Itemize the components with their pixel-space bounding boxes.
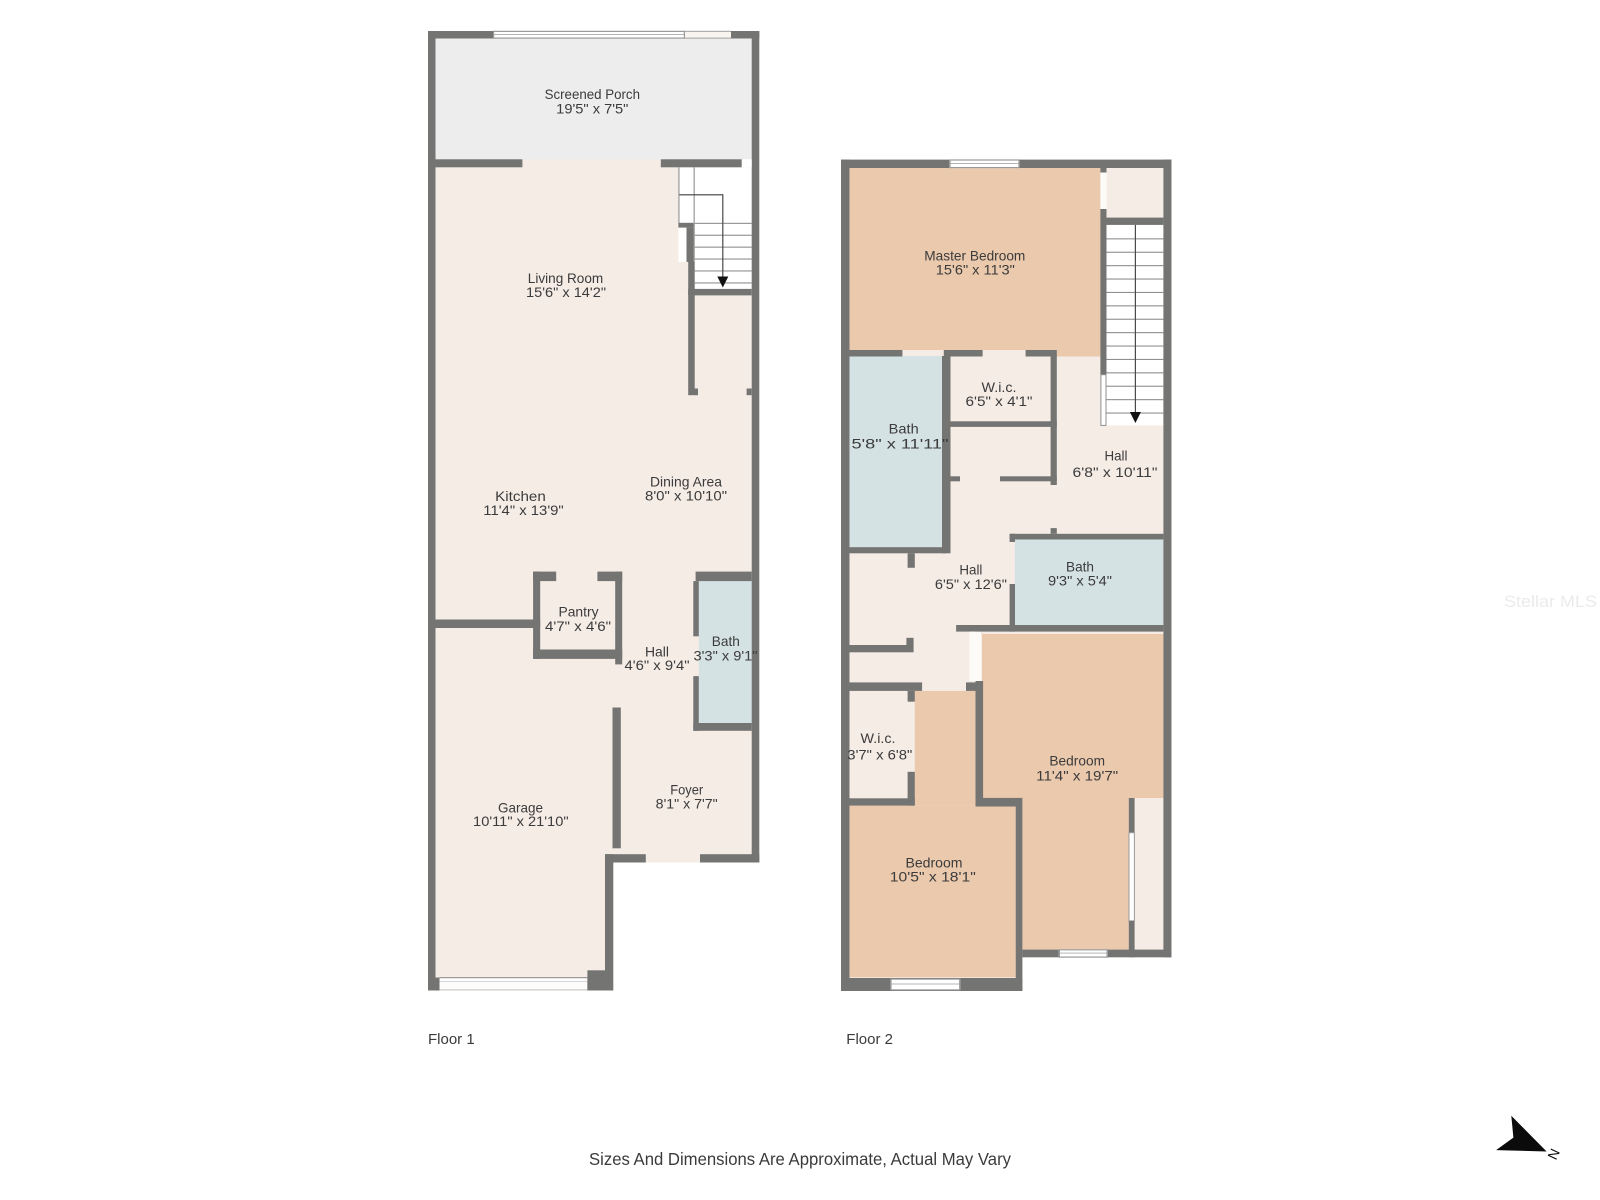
svg-text:Floor 2: Floor 2 <box>846 1031 893 1048</box>
svg-text:11'4" x 19'7": 11'4" x 19'7" <box>1036 767 1118 783</box>
svg-text:15'6" x 14'2": 15'6" x 14'2" <box>526 284 606 300</box>
svg-text:Bedroom: Bedroom <box>1049 753 1105 769</box>
svg-text:Stellar MLS: Stellar MLS <box>1504 592 1597 611</box>
svg-text:4'7" x 4'6": 4'7" x 4'6" <box>545 618 611 634</box>
svg-text:Bath: Bath <box>889 421 919 437</box>
svg-text:3'3" x 9'1": 3'3" x 9'1" <box>694 648 758 664</box>
svg-text:6'5" x 4'1": 6'5" x 4'1" <box>966 393 1033 409</box>
svg-text:Hall: Hall <box>1105 447 1128 463</box>
svg-text:6'8" x 10'11": 6'8" x 10'11" <box>1073 464 1158 480</box>
svg-text:Sizes And Dimensions Are Appro: Sizes And Dimensions Are Approximate, Ac… <box>589 1149 1011 1169</box>
svg-text:5'8" x 11'11": 5'8" x 11'11" <box>852 436 949 452</box>
svg-text:19'5" x 7'5": 19'5" x 7'5" <box>556 101 628 117</box>
svg-text:15'6" x 11'3": 15'6" x 11'3" <box>936 262 1015 278</box>
svg-text:6'5" x 12'6": 6'5" x 12'6" <box>935 576 1007 592</box>
svg-text:3'7" x 6'8": 3'7" x 6'8" <box>847 747 912 763</box>
svg-text:Floor 1: Floor 1 <box>428 1031 475 1048</box>
svg-text:8'1" x 7'7": 8'1" x 7'7" <box>656 796 718 812</box>
svg-text:8'0" x 10'10": 8'0" x 10'10" <box>645 488 727 504</box>
svg-text:4'6" x 9'4": 4'6" x 9'4" <box>625 657 690 673</box>
svg-text:W.i.c.: W.i.c. <box>861 730 896 746</box>
svg-text:11'4" x 13'9": 11'4" x 13'9" <box>483 502 563 518</box>
svg-text:9'3" x 5'4": 9'3" x 5'4" <box>1048 573 1112 589</box>
svg-text:10'5" x 18'1": 10'5" x 18'1" <box>890 869 976 885</box>
svg-text:10'11" x 21'10": 10'11" x 21'10" <box>473 813 569 829</box>
